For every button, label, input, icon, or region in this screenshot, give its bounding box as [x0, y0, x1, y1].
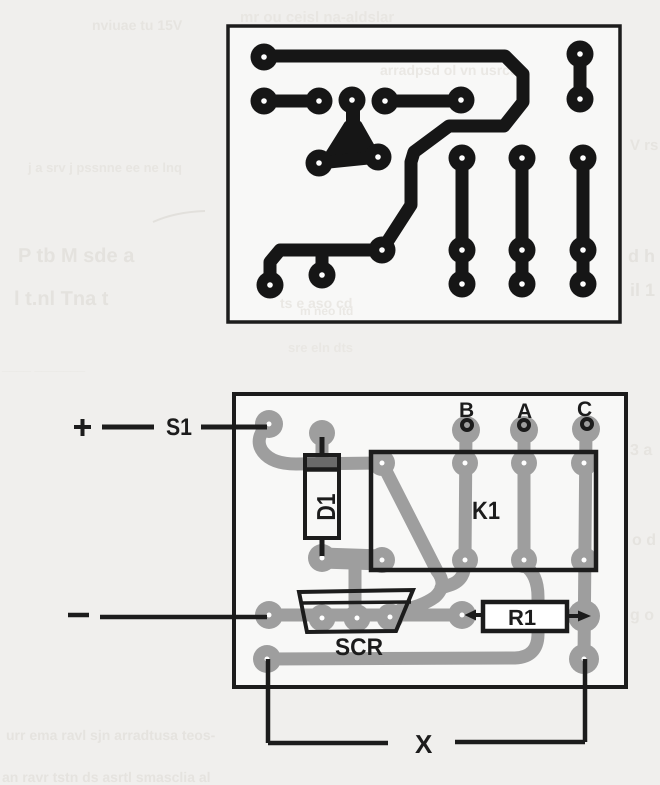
- svg-text:m neo ltd: m neo ltd: [300, 304, 353, 318]
- svg-text:R1: R1: [508, 605, 536, 630]
- svg-text:il 1: il 1: [630, 280, 655, 300]
- svg-text:D1: D1: [311, 494, 341, 521]
- svg-text:l t.nl Tna t: l t.nl Tna t: [14, 288, 109, 310]
- svg-text:g o: g o: [630, 607, 654, 624]
- svg-text:SCR: SCR: [335, 634, 383, 661]
- svg-text:sre eln dts: sre eln dts: [288, 340, 353, 355]
- svg-text:arradpsd ol vn usrcee: arradpsd ol vn usrcee: [380, 62, 526, 78]
- svg-text:nviuae tu 15V: nviuae tu 15V: [92, 17, 183, 33]
- svg-text:mr ou ceisl na-aldslar: mr ou ceisl na-aldslar: [240, 9, 394, 26]
- svg-text:K1: K1: [472, 497, 500, 525]
- svg-text:3 a: 3 a: [630, 442, 652, 459]
- svg-text:V rs: V rs: [630, 137, 658, 154]
- svg-text:S1: S1: [166, 414, 192, 441]
- svg-text:d h: d h: [628, 246, 655, 266]
- svg-text:o d: o d: [632, 532, 656, 549]
- svg-text:an ravr tstn ds asrtl smas: an ravr tstn ds asrtl smasclia al: [2, 769, 211, 785]
- svg-text:X: X: [415, 729, 433, 759]
- svg-text:____ _______: ____ _______: [1, 358, 86, 373]
- svg-text:P tb M sde a: P tb M sde a: [18, 245, 135, 267]
- svg-text:urr ema ravl sjn arradtusa: urr ema ravl sjn arradtusa teos-: [6, 727, 216, 743]
- svg-text:j a srv j pssnne ee ne lnq: j a srv j pssnne ee ne lnq: [27, 160, 182, 175]
